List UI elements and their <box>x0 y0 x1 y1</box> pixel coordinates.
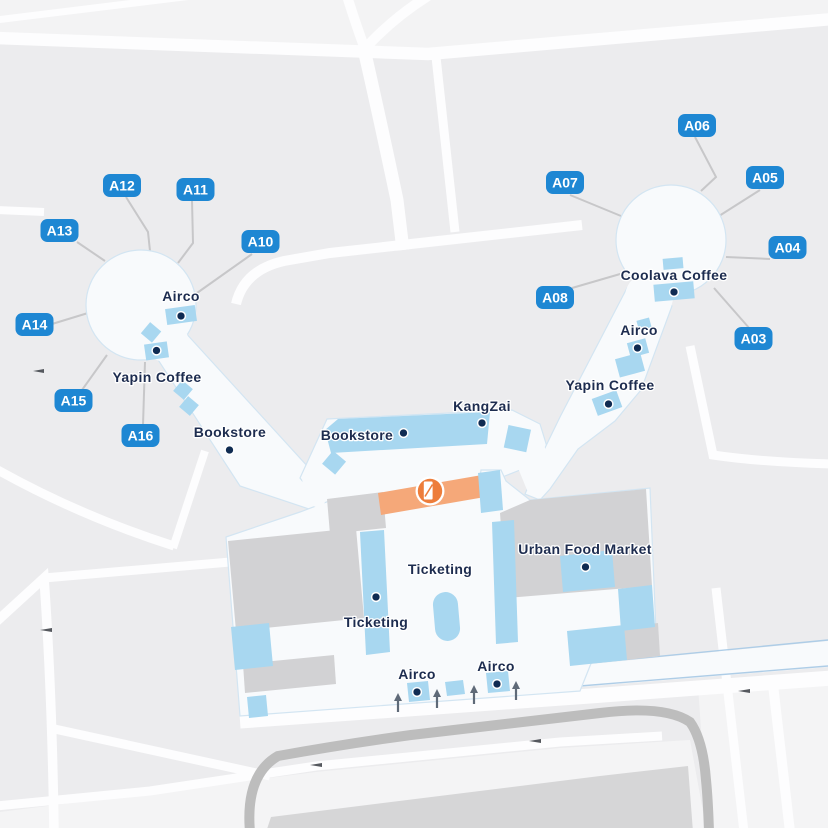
svg-text:Airco: Airco <box>162 288 200 304</box>
svg-text:Bookstore: Bookstore <box>321 427 393 443</box>
svg-text:Airco: Airco <box>398 666 436 682</box>
svg-text:A13: A13 <box>47 223 73 239</box>
svg-text:A16: A16 <box>128 428 154 444</box>
svg-text:A11: A11 <box>183 182 208 198</box>
svg-text:Bookstore: Bookstore <box>194 424 266 440</box>
svg-text:A08: A08 <box>542 290 568 306</box>
svg-text:Ticketing: Ticketing <box>408 561 472 577</box>
svg-text:Airco: Airco <box>477 658 515 674</box>
svg-text:A05: A05 <box>752 170 778 186</box>
svg-text:A06: A06 <box>684 118 710 134</box>
svg-text:Airco: Airco <box>620 322 658 338</box>
svg-text:A07: A07 <box>552 175 578 191</box>
svg-text:A10: A10 <box>248 234 274 250</box>
svg-text:A04: A04 <box>775 240 801 256</box>
svg-text:Urban Food Market: Urban Food Market <box>518 541 652 557</box>
svg-text:Coolava Coffee: Coolava Coffee <box>621 267 728 283</box>
svg-text:A14: A14 <box>22 317 48 333</box>
svg-text:Yapin Coffee: Yapin Coffee <box>113 369 202 385</box>
svg-text:Ticketing: Ticketing <box>344 614 408 630</box>
svg-text:A15: A15 <box>61 393 87 409</box>
svg-text:Yapin Coffee: Yapin Coffee <box>566 377 655 393</box>
svg-text:A03: A03 <box>741 331 767 347</box>
svg-text:KangZai: KangZai <box>453 398 511 414</box>
svg-text:A12: A12 <box>109 178 135 194</box>
